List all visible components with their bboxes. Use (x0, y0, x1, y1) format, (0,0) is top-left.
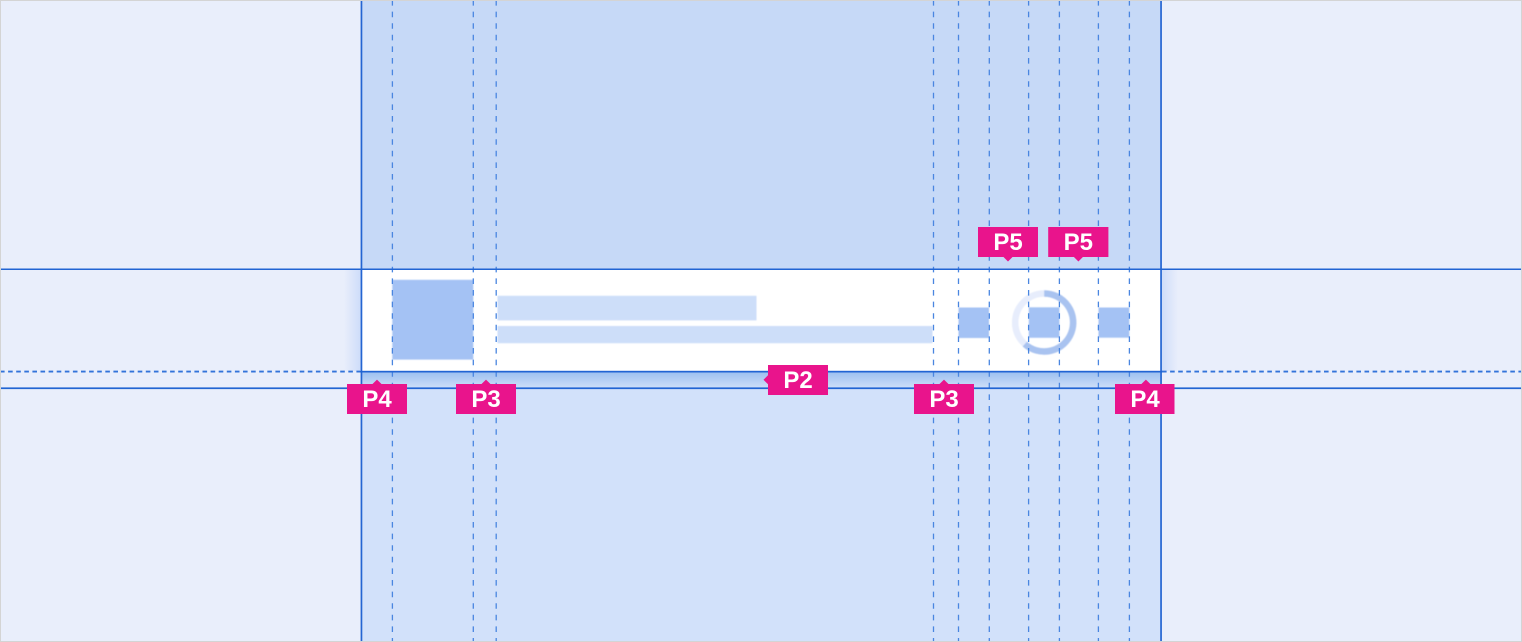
svg-text:P5: P5 (993, 229, 1022, 256)
svg-text:P4: P4 (362, 386, 392, 413)
svg-text:P2: P2 (783, 367, 812, 394)
svg-text:P4: P4 (1130, 386, 1160, 413)
svg-text:P3: P3 (929, 386, 958, 413)
svg-text:P3: P3 (471, 386, 500, 413)
svg-text:P5: P5 (1064, 229, 1093, 256)
